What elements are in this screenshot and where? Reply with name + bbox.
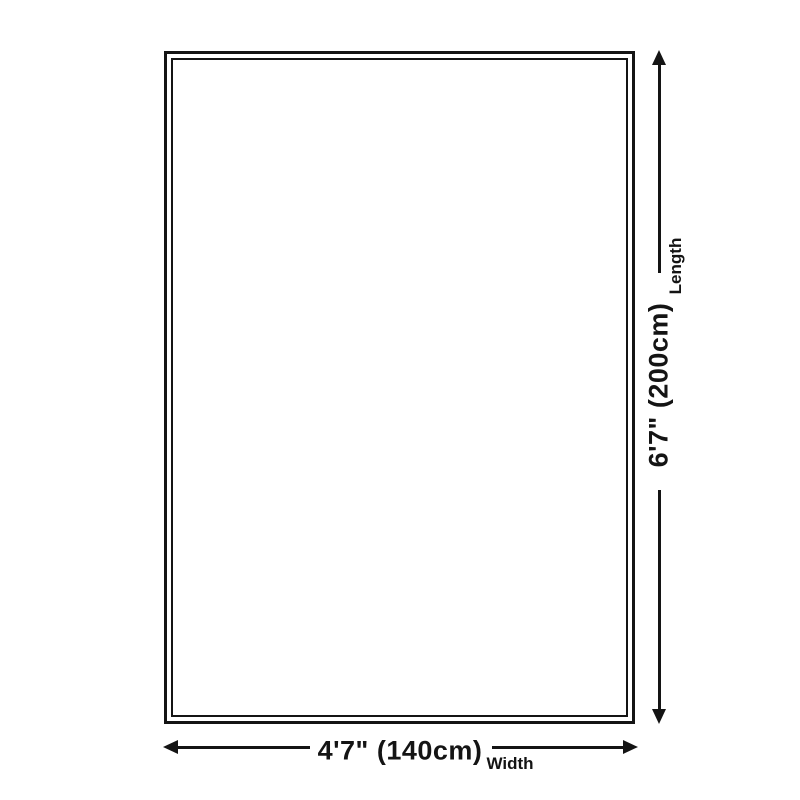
arrow-right-icon — [623, 740, 638, 754]
arrow-down-icon — [652, 709, 666, 724]
width-arrow-left-segment — [176, 746, 310, 749]
width-value: 4'7" (140cm) — [318, 736, 483, 767]
length-arrow-top-segment — [658, 63, 661, 273]
length-arrow-bottom-segment — [658, 490, 661, 710]
width-label: Width — [486, 754, 533, 774]
width-arrow-right-segment — [492, 746, 624, 749]
rug-inner-border — [171, 58, 628, 717]
length-value: 6'7" (200cm) — [644, 303, 675, 468]
length-label: Length — [666, 238, 686, 295]
rug-dimension-diagram: Length 6'7" (200cm) 4'7" (140cm) Width — [0, 0, 800, 800]
rug-outline — [164, 51, 635, 724]
